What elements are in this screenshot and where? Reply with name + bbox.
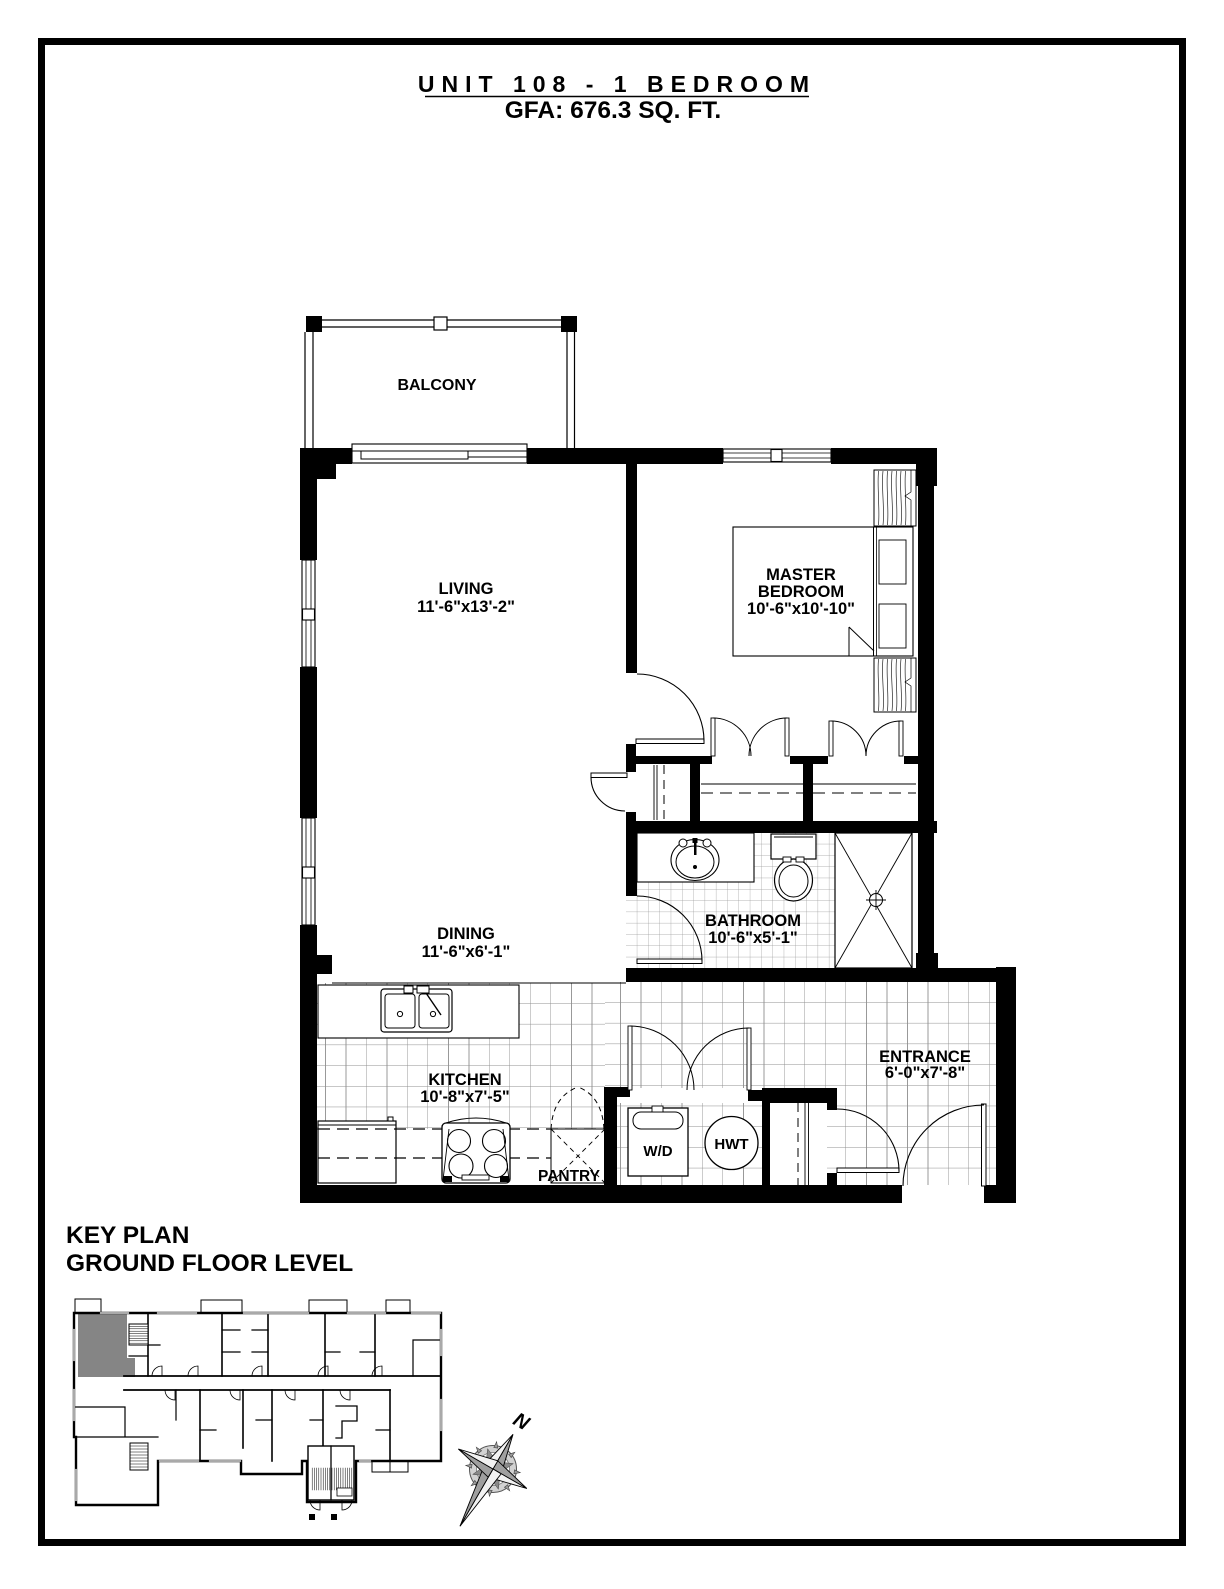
svg-text:BATHROOM: BATHROOM (705, 912, 801, 930)
svg-text:W/D: W/D (643, 1143, 672, 1160)
svg-text:LIVING: LIVING (438, 580, 493, 598)
svg-text:11'-6"x6'-1": 11'-6"x6'-1" (422, 943, 511, 961)
svg-text:KITCHEN: KITCHEN (428, 1071, 501, 1089)
svg-text:11'-6"x13'-2": 11'-6"x13'-2" (417, 598, 515, 616)
svg-text:BEDROOM: BEDROOM (758, 583, 844, 601)
svg-text:10'-8"x7'-5": 10'-8"x7'-5" (420, 1088, 510, 1106)
svg-text:BALCONY: BALCONY (397, 377, 476, 394)
svg-text:PANTRY: PANTRY (538, 1168, 601, 1185)
svg-text:UNIT 108 - 1 BEDROOM: UNIT 108 - 1 BEDROOM (418, 71, 816, 97)
svg-text:HWT: HWT (714, 1136, 748, 1153)
svg-text:KEY PLAN: KEY PLAN (66, 1222, 189, 1249)
svg-text:10'-6"x5'-1": 10'-6"x5'-1" (708, 929, 798, 947)
svg-text:6'-0"x7'-8": 6'-0"x7'-8" (885, 1064, 965, 1082)
svg-text:10'-6"x10'-10": 10'-6"x10'-10" (747, 600, 855, 618)
svg-text:DINING: DINING (437, 925, 495, 943)
svg-text:GFA: 676.3 SQ. FT.: GFA: 676.3 SQ. FT. (505, 97, 721, 124)
svg-text:MASTER: MASTER (766, 566, 836, 584)
svg-text:GROUND FLOOR LEVEL: GROUND FLOOR LEVEL (66, 1250, 353, 1277)
